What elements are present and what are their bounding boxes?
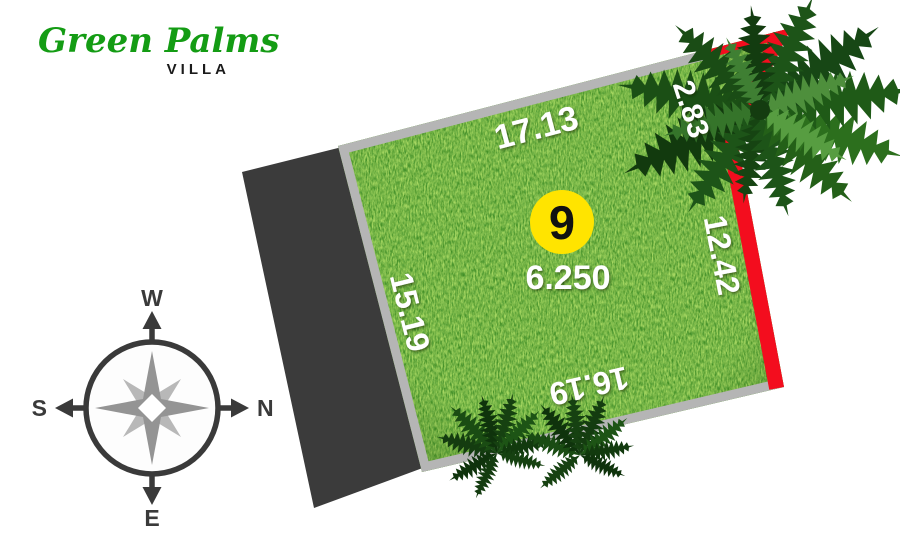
compass-rose: W S N E xyxy=(32,285,274,531)
plot-number-badge[interactable]: 9 xyxy=(530,190,594,254)
site-map-canvas: 9 17.13 2.83 12.42 16.19 15.19 6.250 W S xyxy=(0,0,900,558)
compass-label-north: N xyxy=(257,395,274,421)
compass-label-south: S xyxy=(32,395,47,421)
plot-area-value: 6.250 xyxy=(525,259,610,297)
plot-number: 9 xyxy=(549,196,575,249)
compass-label-east: E xyxy=(144,505,159,531)
compass-label-west: W xyxy=(141,285,163,311)
plot-map-page: Green Palms VILLA xyxy=(0,0,900,558)
